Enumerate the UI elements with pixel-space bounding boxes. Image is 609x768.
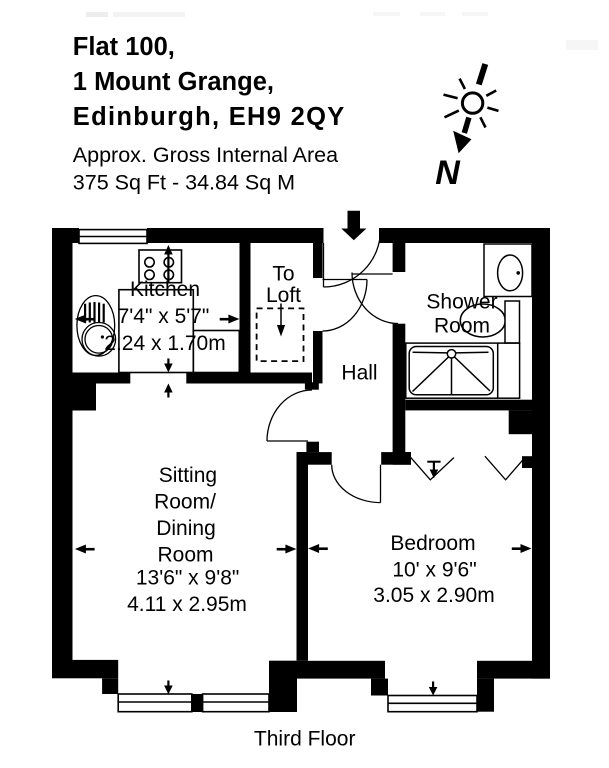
svg-text:7'4" x 5'7": 7'4" x 5'7" xyxy=(118,305,210,328)
svg-text:Dining: Dining xyxy=(156,517,216,540)
svg-text:10' x 9'6": 10' x 9'6" xyxy=(392,559,476,582)
svg-text:Room: Room xyxy=(434,315,490,338)
svg-text:Room: Room xyxy=(157,544,213,567)
svg-text:375 Sq Ft - 34.84 Sq M: 375 Sq Ft - 34.84 Sq M xyxy=(73,171,295,195)
svg-text:Approx. Gross Internal Area: Approx. Gross Internal Area xyxy=(73,143,338,167)
svg-text:Bedroom: Bedroom xyxy=(390,532,475,555)
svg-text:N: N xyxy=(435,154,461,192)
svg-text:Sitting: Sitting xyxy=(159,464,217,487)
svg-text:Shower: Shower xyxy=(426,291,497,314)
svg-text:13'6" x 9'8": 13'6" x 9'8" xyxy=(136,567,240,590)
svg-text:Hall: Hall xyxy=(341,362,377,385)
svg-text:To: To xyxy=(272,263,294,286)
svg-text:Edinburgh, EH9 2QY: Edinburgh, EH9 2QY xyxy=(73,103,346,131)
svg-text:4.11 x 2.95m: 4.11 x 2.95m xyxy=(127,593,247,616)
svg-text:Flat 100,: Flat 100, xyxy=(73,33,175,61)
svg-text:1 Mount Grange,: 1 Mount Grange, xyxy=(73,68,274,96)
svg-text:Kitchen: Kitchen xyxy=(130,278,200,301)
svg-text:Room/: Room/ xyxy=(154,491,216,514)
svg-text:2.24 x 1.70m: 2.24 x 1.70m xyxy=(104,332,225,355)
svg-text:Third Floor: Third Floor xyxy=(254,728,356,751)
svg-text:3.05 x 2.90m: 3.05 x 2.90m xyxy=(373,584,494,607)
svg-text:Loft: Loft xyxy=(266,284,301,307)
